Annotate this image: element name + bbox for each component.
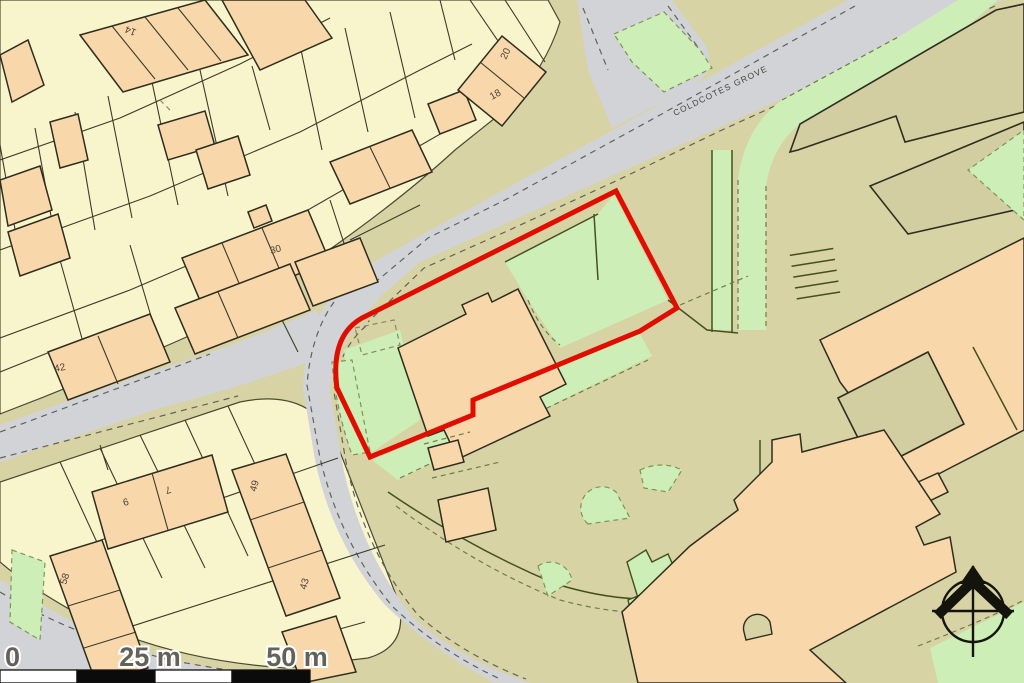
- scale-label-25m: 25 m: [119, 642, 181, 672]
- site-plan-map: COLDCOTES GROVE 14 20 18 30 42 6 7 49 58…: [0, 0, 1024, 683]
- scale-segment-4: [232, 670, 310, 683]
- scale-label-0: 0: [5, 642, 20, 672]
- scale-label-50m: 50 m: [266, 642, 328, 672]
- grass-strip-west: [712, 150, 732, 330]
- scale-segment-3: [155, 670, 232, 683]
- scale-segment-1: [0, 670, 77, 683]
- map-canvas: COLDCOTES GROVE 14 20 18 30 42 6 7 49 58…: [0, 0, 1024, 683]
- scale-segment-2: [77, 670, 155, 683]
